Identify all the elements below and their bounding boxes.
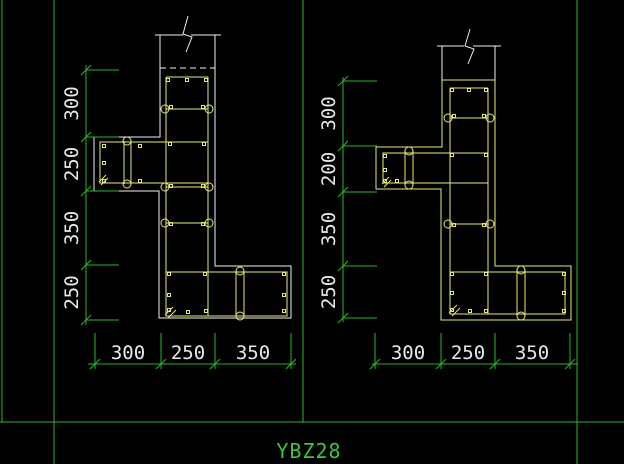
dim-label: 250 (61, 275, 83, 309)
section-outline (94, 68, 291, 318)
dimension-left: 300 200 350 250 (318, 76, 377, 323)
cross-tie-lines (405, 151, 525, 316)
dim-label: 350 (515, 342, 549, 364)
drawing-title-label: YBZ28 (276, 439, 341, 463)
dim-label: 300 (318, 96, 340, 130)
dim-label: 200 (318, 152, 340, 186)
dim-label: 350 (318, 212, 340, 246)
section-outline (376, 80, 571, 320)
dim-label: 300 (391, 342, 425, 364)
web-stirrup-lines (450, 88, 488, 314)
wall-stub-lines (155, 35, 221, 68)
dim-label: 350 (236, 342, 270, 364)
flange-stirrup (100, 142, 208, 183)
dimension-bottom: 300 250 350 (88, 333, 296, 369)
dim-label: 250 (171, 342, 205, 364)
flange-stirrup (383, 153, 488, 183)
foot-stirrup (166, 272, 287, 316)
dimension-left: 300 250 350 250 (61, 65, 119, 325)
stirrups (99, 77, 287, 320)
dim-extension-lines (343, 81, 377, 318)
stirrups (382, 88, 565, 320)
dim-label: 250 (318, 275, 340, 309)
wall-stub (437, 29, 501, 80)
hook-slash-marks (99, 175, 176, 318)
break-symbol-icon (465, 29, 474, 64)
dim-label: 300 (111, 342, 145, 364)
dim-label: 300 (61, 86, 83, 120)
cad-drawing-sheet: 300 250 350 250 300 250 350 (0, 0, 624, 464)
dim-label: 250 (61, 147, 83, 181)
tie-hooks (405, 114, 525, 320)
drawing-canvas[interactable]: 300 250 350 250 300 250 350 (0, 0, 624, 464)
dim-extension-lines (86, 70, 119, 320)
wall-stub (155, 16, 221, 68)
hook-slash-marks (382, 177, 460, 316)
figure-left-section: 300 250 350 250 300 250 350 (61, 16, 296, 369)
foot-stirrup (450, 272, 565, 314)
dim-label: 350 (61, 211, 83, 245)
web-stirrup-lines (166, 77, 208, 316)
wall-stub-lines (437, 46, 501, 80)
dim-label: 250 (451, 342, 485, 364)
cross-tie-lines (124, 141, 244, 316)
rebar-dots (103, 79, 286, 314)
figure-right-section: 300 200 350 250 300 250 350 (318, 29, 578, 369)
rebar-dots (384, 89, 566, 313)
dimension-bottom: 300 250 350 (370, 333, 578, 369)
break-symbol-icon (183, 16, 192, 52)
